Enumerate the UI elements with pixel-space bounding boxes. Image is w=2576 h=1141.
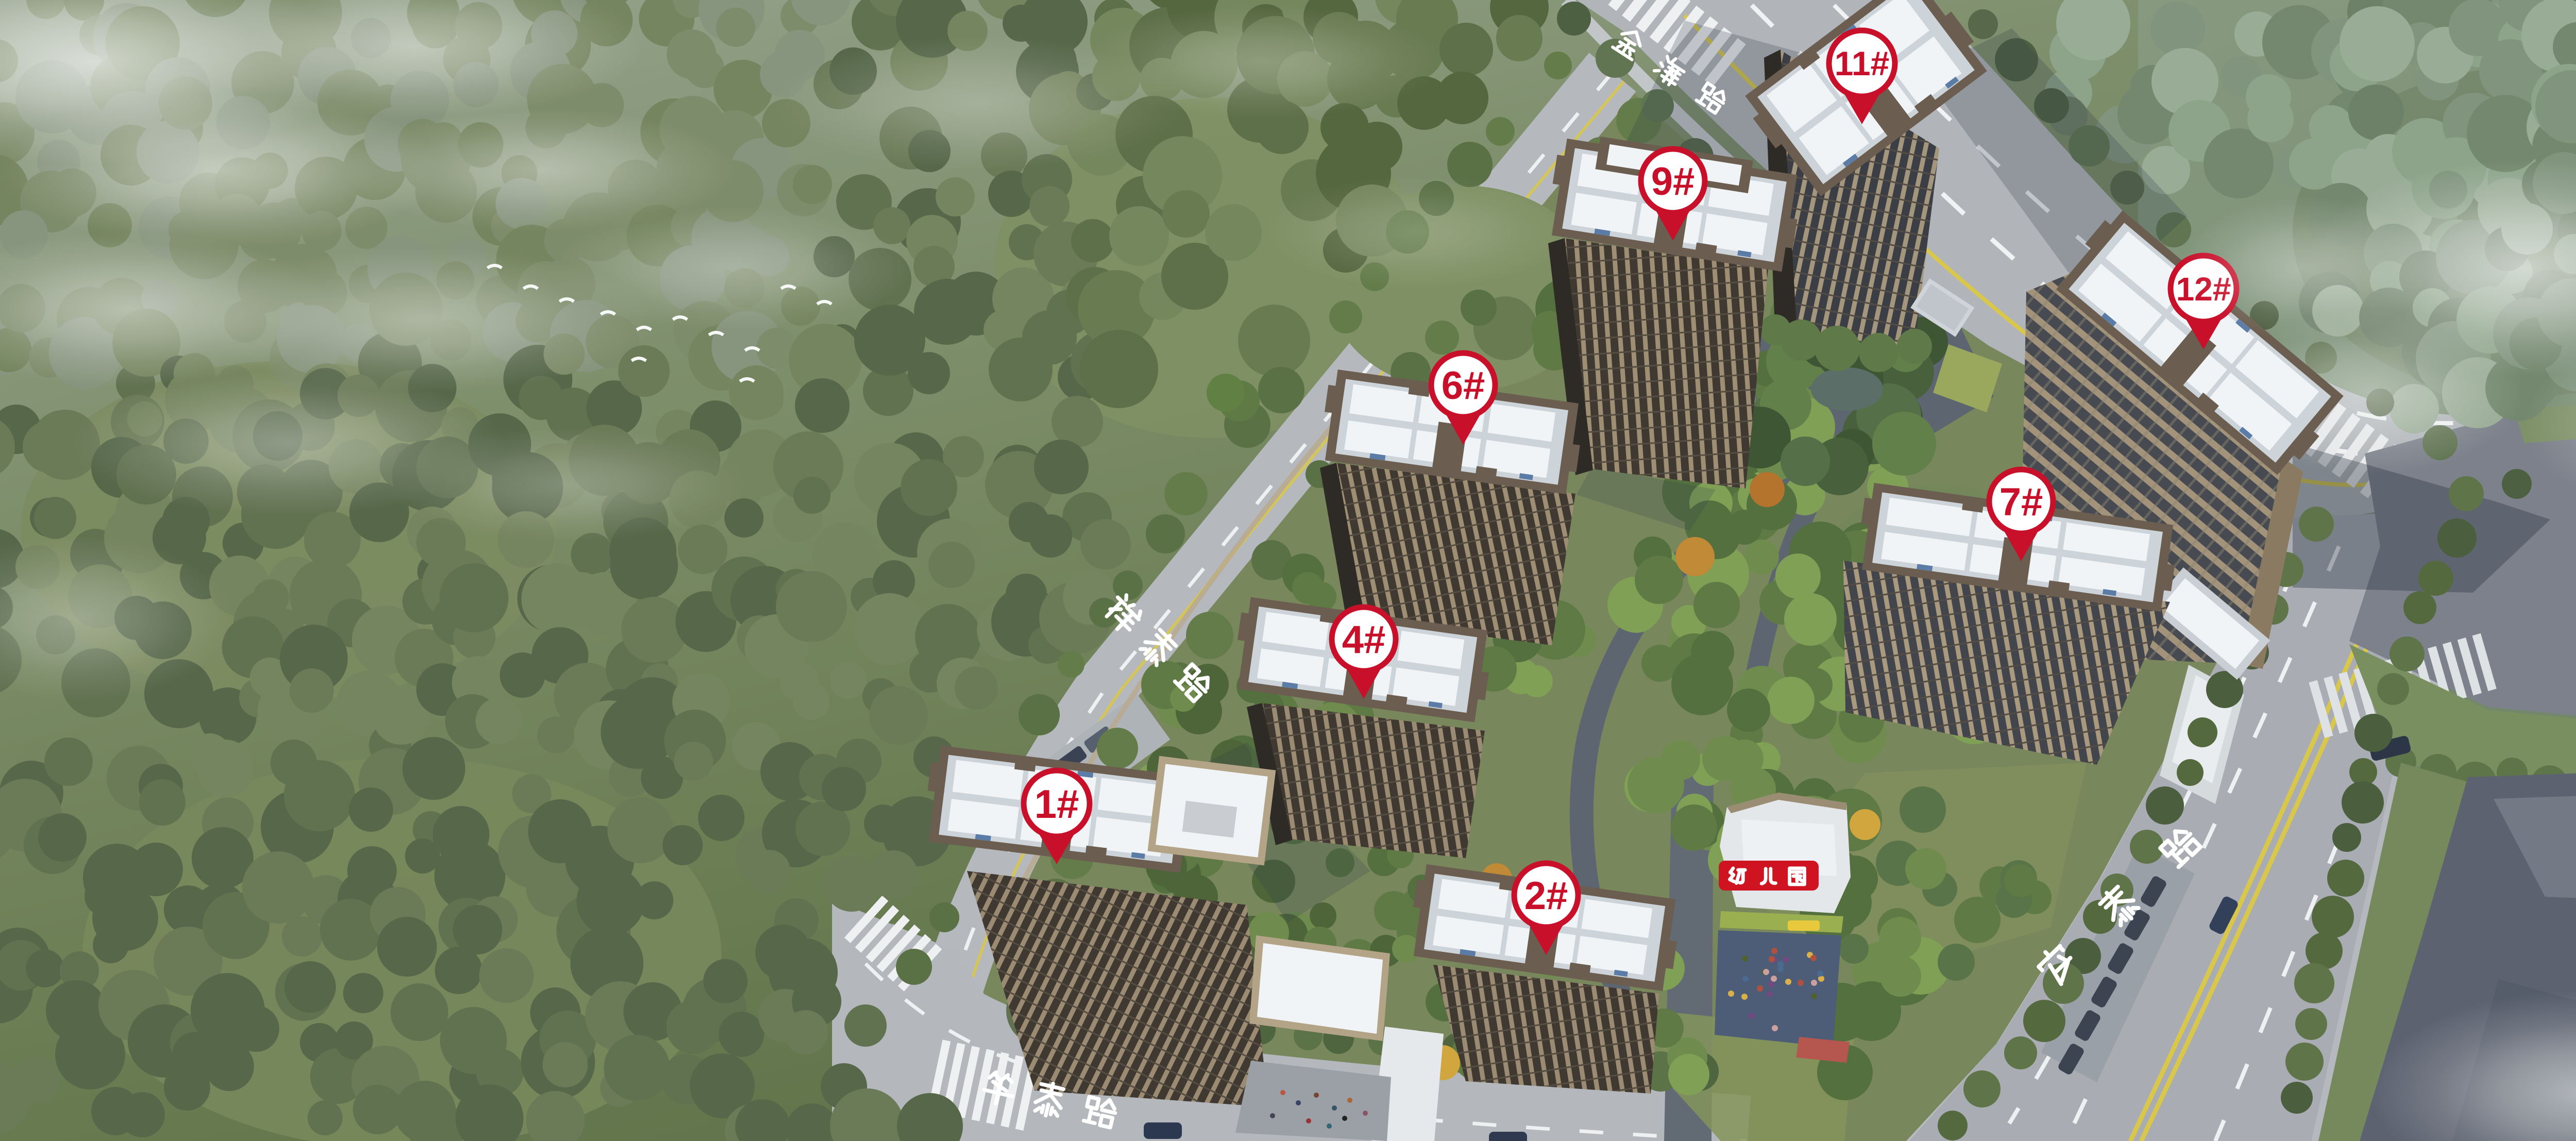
- svg-text:9#: 9#: [1651, 160, 1695, 204]
- svg-text:1#: 1#: [1035, 781, 1079, 827]
- svg-text:11#: 11#: [1835, 44, 1889, 82]
- svg-text:6#: 6#: [1442, 364, 1485, 408]
- svg-text:4#: 4#: [1342, 618, 1386, 662]
- svg-text:7#: 7#: [1999, 480, 2043, 524]
- svg-text:2#: 2#: [1524, 874, 1568, 918]
